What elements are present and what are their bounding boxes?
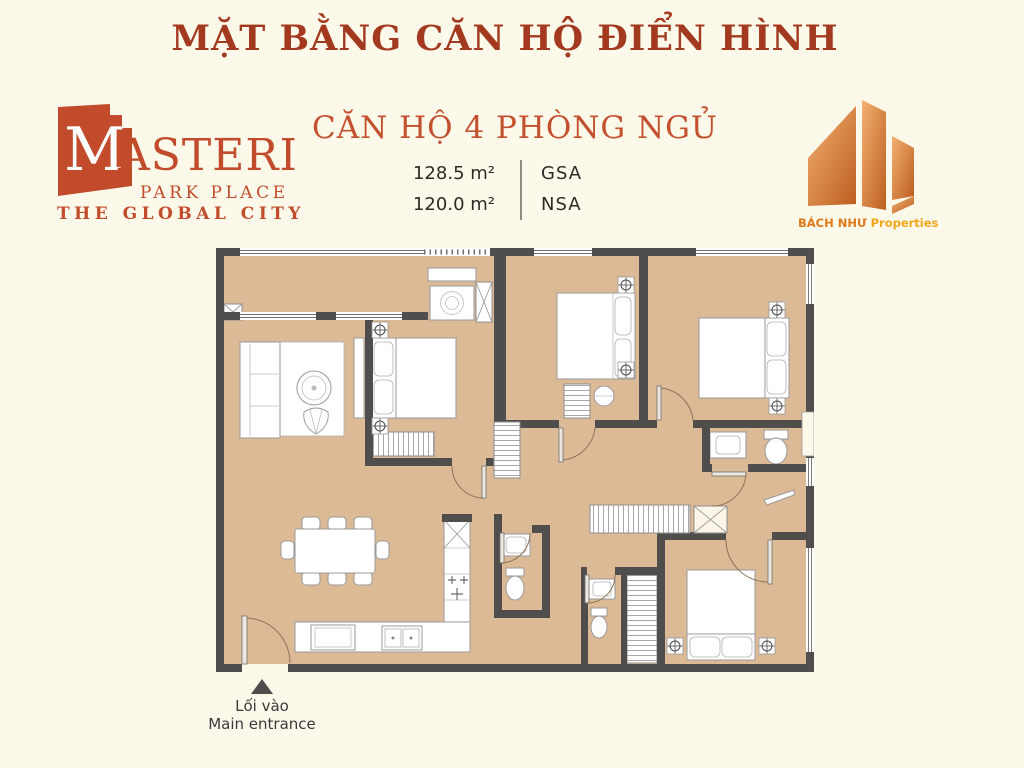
closet — [494, 422, 520, 478]
shaft-box — [694, 506, 727, 533]
closet — [564, 384, 590, 418]
wardrobe — [627, 575, 657, 663]
bachnhu-name: BÁCH NHƯ — [798, 216, 871, 230]
kitchen-sink-icon — [382, 626, 422, 650]
bed-icon — [699, 318, 789, 398]
masteri-logo-initial: M — [64, 120, 125, 180]
kitchen-tall-counter — [444, 520, 470, 622]
masteri-logo-tagline: THE GLOBAL CITY — [57, 204, 305, 224]
entrance-label-en: Main entrance — [196, 715, 328, 733]
area-nsa-value: 120.0 m² — [330, 194, 495, 215]
bachnhu-logo-icon — [800, 92, 930, 218]
area-gsa-label: GSA — [541, 163, 582, 184]
entrance-label-vi: Lối vào — [196, 697, 328, 715]
ac-ledge — [802, 412, 814, 456]
floor-plan — [216, 248, 814, 672]
toilet-icon — [764, 430, 788, 464]
bed-icon — [372, 338, 456, 418]
sofa-icon — [240, 342, 280, 438]
kitchen-appliance — [311, 625, 355, 650]
page-title: MẶT BẰNG CĂN HỘ ĐIỂN HÌNH — [0, 18, 1010, 59]
area-nsa-label: NSA — [541, 194, 582, 215]
sink-icon — [502, 534, 530, 556]
sink-icon — [710, 432, 746, 458]
entrance-door-leaf — [242, 616, 247, 664]
area-divider — [520, 160, 522, 220]
poster: MẶT BẰNG CĂN HỘ ĐIỂN HÌNH M ASTERI PARK … — [0, 0, 1024, 768]
coffee-table-icon — [297, 371, 331, 405]
masteri-logo-subtitle: PARK PLACE — [140, 183, 288, 203]
bachnhu-logo-text: BÁCH NHƯ Properties — [798, 216, 930, 230]
entrance-arrow-icon — [251, 679, 273, 694]
closet — [590, 505, 690, 533]
washing-machine-icon — [430, 286, 474, 320]
tv-console — [354, 338, 364, 418]
area-gsa-value: 128.5 m² — [330, 163, 495, 184]
apartment-title: CĂN HỘ 4 PHÒNG NGỦ — [265, 110, 765, 146]
bachnhu-suffix: Properties — [871, 216, 939, 230]
stool-icon — [594, 386, 614, 406]
master-bedroom — [627, 570, 755, 663]
laundry-shelf — [428, 268, 476, 281]
dining-table-icon — [295, 529, 375, 573]
entrance-opening — [242, 664, 288, 672]
utility-panel — [476, 282, 492, 322]
bedroom-3 — [699, 318, 789, 398]
toilet-icon — [591, 608, 607, 638]
bed-icon — [687, 570, 755, 660]
toilet-icon — [506, 568, 524, 600]
